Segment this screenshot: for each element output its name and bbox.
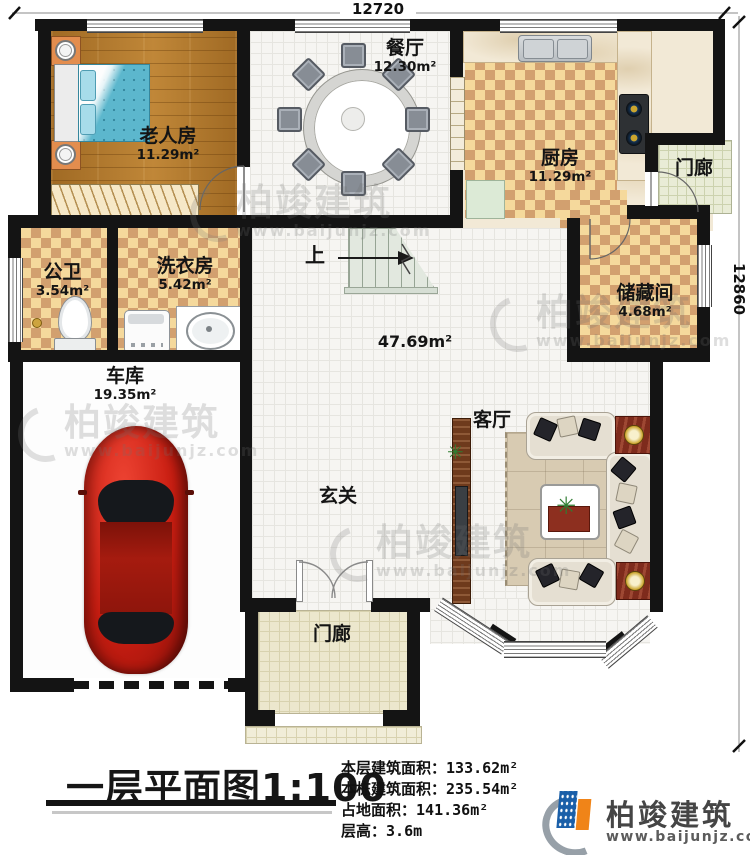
stat-label: 占地面积： [341,801,416,819]
room-name: 客厅 [462,410,522,432]
stat-value: 3.6m [386,822,422,840]
stat-value: 133.62m² [446,759,518,777]
room-name: 车库 [80,366,170,388]
stat-building-area: 本栋建筑面积：235.54m² [341,778,518,799]
annotation-overlay [0,0,750,855]
room-label-bathroom: 公卫 3.54m² [20,262,105,299]
room-name: 厨房 [520,148,600,170]
room-label-dining: 餐厅 12.30m² [365,38,445,75]
hall-area-label: 47.69m² [370,333,460,351]
room-name: 公卫 [20,262,105,284]
room-label-porch-bottom: 门廊 [292,624,372,646]
room-area: 11.29m² [118,148,218,164]
stat-floor-height: 层高：3.6m [341,820,422,841]
room-area: 19.35m² [80,388,170,404]
room-label-laundry: 洗衣房 5.42m² [140,256,230,293]
room-name: 门廊 [664,158,724,180]
title-underline [46,800,336,806]
room-area: 5.42m² [140,278,230,294]
stat-label: 层高： [341,822,386,840]
logo-url: www.baijunjz.com [606,829,750,845]
company-logo [542,788,600,846]
room-area: 3.54m² [20,284,105,300]
room-area: 12.30m² [365,60,445,76]
title-underline-shadow [52,811,332,814]
room-label-living: 客厅 [462,410,522,432]
stat-value: 235.54m² [446,780,518,798]
logo-name: 柏竣建筑 [606,792,734,834]
room-name: 玄关 [308,486,368,508]
logo-building-blue-icon [556,791,577,828]
stat-footprint-area: 占地面积：141.36m² [341,799,488,820]
dimension-top: 12720 [340,0,416,18]
room-label-kitchen: 厨房 11.29m² [520,148,600,185]
room-label-bedroom: 老人房 11.29m² [118,126,218,163]
floor-plan-sheet: ✳ ✳ [0,0,750,855]
stat-value: 141.36m² [416,801,488,819]
room-label-storage: 储藏间 4.68m² [600,283,690,320]
room-area: 11.29m² [520,170,600,186]
stairs-up-label: 上 [300,244,330,267]
stat-floor-area: 本层建筑面积：133.62m² [341,757,518,778]
stat-label: 本栋建筑面积： [341,780,446,798]
room-name: 储藏间 [600,283,690,305]
room-label-garage: 车库 19.35m² [80,366,170,403]
dimension-right: 12860 [730,254,748,324]
room-name: 门廊 [292,624,372,646]
logo-building-orange-icon [576,799,592,830]
room-label-porch-top: 门廊 [664,158,724,180]
room-name: 洗衣房 [140,256,230,278]
room-area: 4.68m² [600,305,690,321]
stat-label: 本层建筑面积： [341,759,446,777]
room-label-foyer: 玄关 [308,486,368,508]
room-name: 老人房 [118,126,218,148]
room-name: 餐厅 [365,38,445,60]
